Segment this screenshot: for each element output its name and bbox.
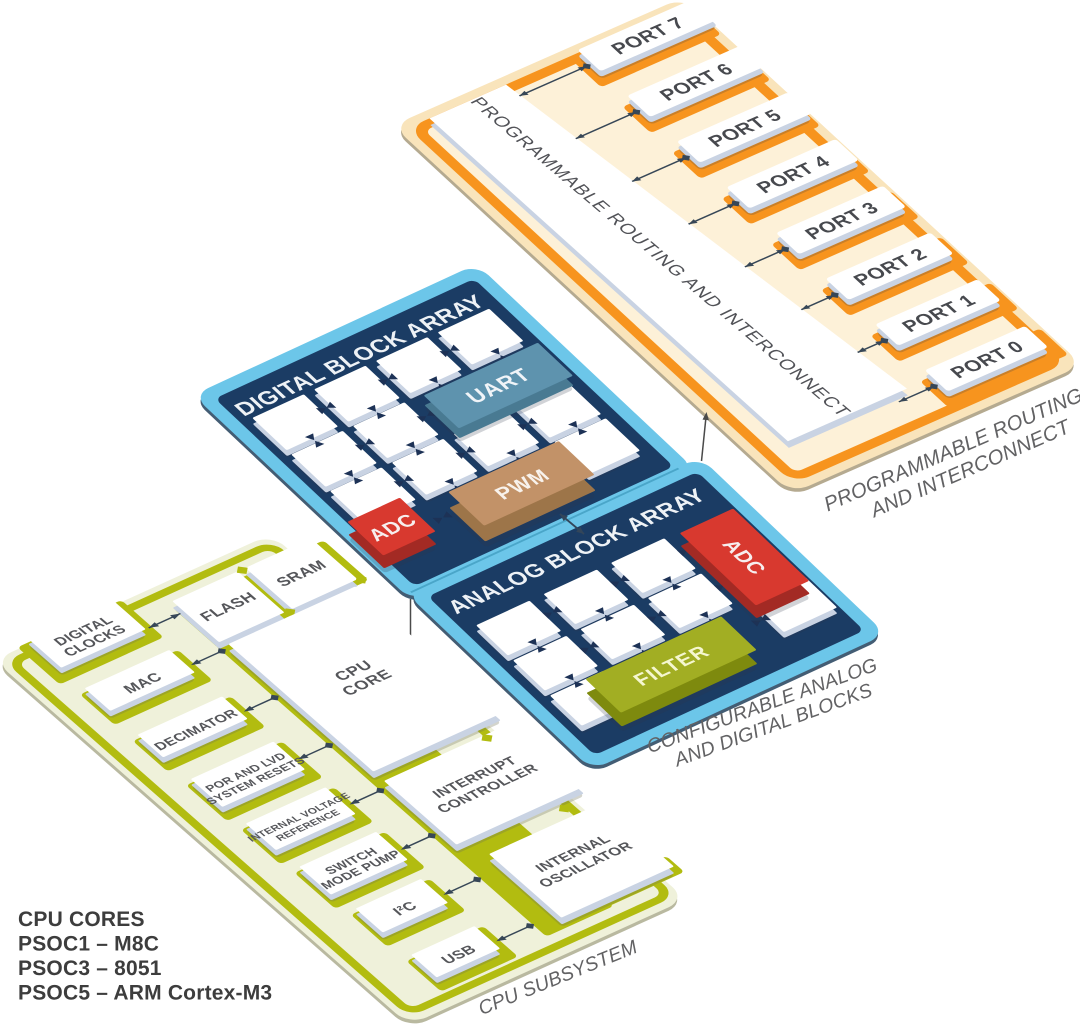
svg-text:PSOC1 – M8C: PSOC1 – M8C [18,933,159,956]
svg-text:PSOC5 – ARM Cortex-M3: PSOC5 – ARM Cortex-M3 [18,982,272,1005]
svg-text:CPU CORES: CPU CORES [18,908,145,931]
svg-text:PSOC3 – 8051: PSOC3 – 8051 [18,957,162,980]
